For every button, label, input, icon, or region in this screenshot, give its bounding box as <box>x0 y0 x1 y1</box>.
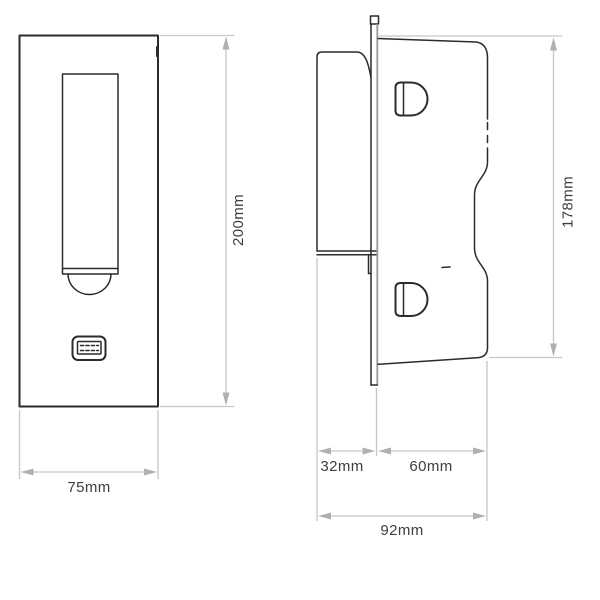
side-recessed-body-outline <box>378 39 488 365</box>
clip-outline <box>396 83 428 116</box>
dimension-total-depth: 92mm <box>318 513 486 540</box>
front-light-tube <box>63 74 119 274</box>
side-faceplate <box>371 16 379 385</box>
technical-drawing-page: 200mm 75mm 178mm 32mm <box>0 0 600 600</box>
side-tube-to-plate-curve <box>357 52 371 78</box>
dimension-protrusion-depth: 32mm <box>318 448 376 476</box>
front-view <box>20 36 159 407</box>
mounting-clip-bottom <box>396 283 428 316</box>
clip-outline <box>396 283 428 316</box>
usb-port-icon <box>73 337 106 361</box>
dimension-label: 92mm <box>380 522 423 539</box>
arrow-down-icon <box>550 344 557 357</box>
mounting-clip-top <box>396 83 428 116</box>
body-detail-dash <box>442 267 450 268</box>
dimension-front-width: 75mm <box>20 410 159 496</box>
dimensions: 200mm 75mm 178mm 32mm <box>20 36 577 540</box>
dimension-label: 200mm <box>230 194 247 246</box>
arrow-left-icon <box>378 448 391 455</box>
arrow-left-icon <box>21 469 34 476</box>
side-faceplate-top-cap <box>371 16 379 24</box>
arrow-left-icon <box>318 513 331 520</box>
arrow-down-icon <box>223 393 230 406</box>
dimension-label: 75mm <box>67 479 110 496</box>
arrow-right-icon <box>473 513 486 520</box>
arrow-right-icon <box>363 448 376 455</box>
dimension-label: 32mm <box>320 458 363 475</box>
dimension-side-height: 178mm <box>379 36 577 358</box>
dimension-label: 60mm <box>409 458 452 475</box>
arrow-up-icon <box>223 37 230 50</box>
dimension-label: 178mm <box>560 176 577 228</box>
side-view <box>317 16 488 385</box>
front-knob-dome <box>68 274 111 295</box>
arrow-right-icon <box>144 469 157 476</box>
arrow-right-icon <box>473 448 486 455</box>
side-light-tube-profile <box>317 52 357 251</box>
dimension-front-height: 200mm <box>160 36 247 407</box>
arrow-left-icon <box>318 448 331 455</box>
usb-port-inner <box>78 342 102 355</box>
wall-light-dimension-drawing: 200mm 75mm 178mm 32mm <box>0 0 600 600</box>
arrow-up-icon <box>550 38 557 51</box>
dimension-recess-depth: 60mm <box>378 448 486 476</box>
